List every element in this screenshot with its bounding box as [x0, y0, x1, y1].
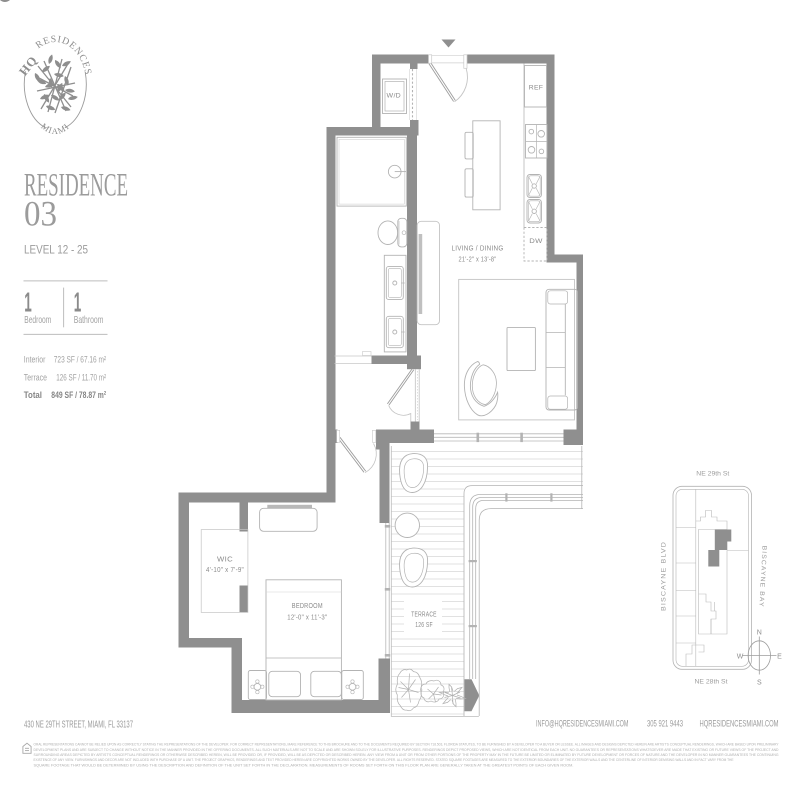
svg-text:126 SF / 11.70 m²: 126 SF / 11.70 m²: [56, 372, 106, 383]
svg-text:723 SF / 67.16 m²: 723 SF / 67.16 m²: [54, 355, 107, 366]
svg-text:Terrace: Terrace: [24, 372, 47, 383]
svg-text:W/D: W/D: [387, 93, 402, 100]
svg-text:305 921 9443: 305 921 9443: [647, 719, 683, 730]
svg-text:BISCAYNE BLVD: BISCAYNE BLVD: [661, 541, 668, 611]
svg-text:DW: DW: [529, 238, 543, 245]
svg-text:126 SF: 126 SF: [415, 620, 433, 629]
svg-text:849 SF / 78.87 m²: 849 SF / 78.87 m²: [51, 390, 106, 401]
svg-text:INFO@HQRESIDENCESMIAMI.COM: INFO@HQRESIDENCESMIAMI.COM: [536, 719, 629, 730]
svg-text:REF: REF: [529, 85, 544, 92]
svg-text:1: 1: [74, 286, 82, 317]
svg-text:MIAMI: MIAMI: [39, 121, 71, 136]
svg-text:N: N: [757, 630, 762, 637]
svg-text:WIC: WIC: [217, 555, 233, 564]
svg-text:E: E: [777, 653, 782, 660]
svg-text:Total: Total: [24, 390, 42, 401]
svg-text:BEDROOM: BEDROOM: [292, 601, 323, 610]
svg-text:1: 1: [24, 286, 32, 317]
svg-text:430 NE 29TH STREET, MIAMI, FL: 430 NE 29TH STREET, MIAMI, FL 33137: [24, 719, 133, 730]
svg-text:HQRESIDENCESMIAMI.COM: HQRESIDENCESMIAMI.COM: [700, 719, 779, 730]
svg-text:ORAL REPRESENTATIONS CANNOT BE: ORAL REPRESENTATIONS CANNOT BE RELIED UP…: [34, 743, 780, 747]
svg-text:21'-2" x 13'-8": 21'-2" x 13'-8": [459, 255, 497, 264]
svg-text:NE 28th St: NE 28th St: [695, 678, 728, 685]
svg-text:12'-0" x 11'-3": 12'-0" x 11'-3": [287, 613, 327, 622]
svg-text:DEVELOPMENT PLANS AND ARE SUBJ: DEVELOPMENT PLANS AND ARE SUBJECT TO CHA…: [34, 748, 779, 752]
svg-text:S: S: [757, 680, 762, 687]
svg-text:LEVEL 12 - 25: LEVEL 12 - 25: [24, 244, 88, 256]
svg-text:BISCAYNE BAY: BISCAYNE BAY: [757, 545, 767, 607]
svg-text:Interior: Interior: [24, 355, 46, 366]
svg-text:EXISTENCE OF ANY VIEW. FURNISH: EXISTENCE OF ANY VIEW. FURNISHINGS AND D…: [34, 758, 735, 762]
svg-text:03: 03: [24, 193, 57, 233]
svg-text:Bathroom: Bathroom: [74, 315, 104, 326]
svg-text:LIVING / DINING: LIVING / DINING: [452, 244, 504, 253]
svg-text:Bedroom: Bedroom: [24, 315, 51, 326]
svg-text:NE 29th St: NE 29th St: [696, 471, 729, 478]
svg-text:SQUARE FOOTAGE THAT WOULD BE D: SQUARE FOOTAGE THAT WOULD BE DETERMINED …: [34, 763, 574, 767]
svg-text:W: W: [737, 653, 744, 660]
svg-text:SURROUNDING AREAS DEPICTED BY: SURROUNDING AREAS DEPICTED BY ARTIST'S C…: [34, 753, 779, 757]
svg-text:4'-10" x 7'-9": 4'-10" x 7'-9": [206, 565, 244, 574]
svg-text:TERRACE: TERRACE: [411, 610, 437, 619]
